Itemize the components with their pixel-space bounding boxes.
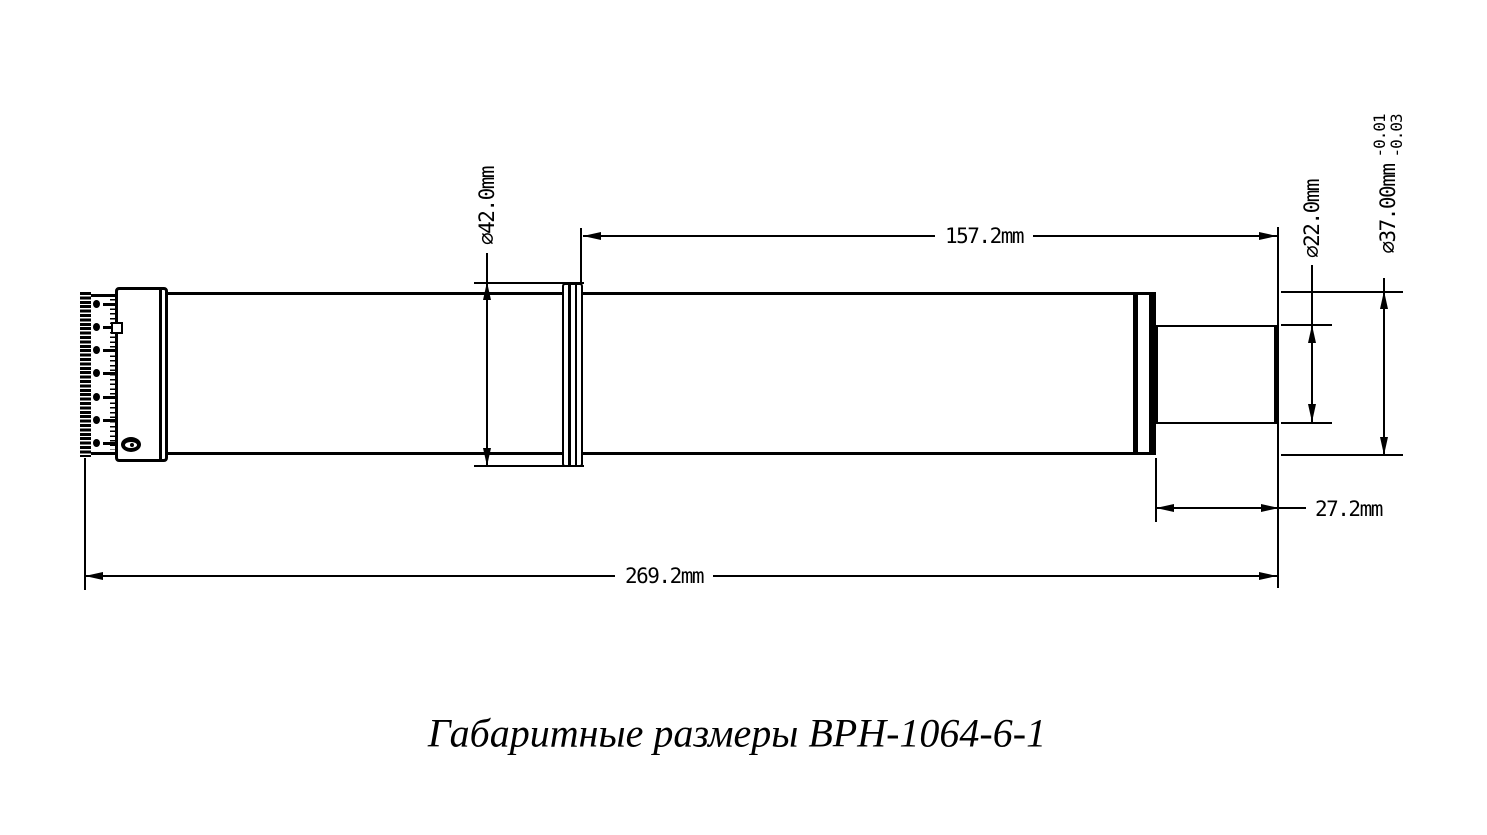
dim-tolerance-lower: -0.03 [1388,114,1405,157]
dim-arrow-down [483,448,491,466]
extension-line-shoulder [1155,458,1157,522]
extension-line-tip-bottom [1281,422,1332,424]
dim-arrow-up [1380,291,1388,309]
adjustment-knurl-ring [80,292,91,457]
rear-cap-inner-line [159,290,162,459]
graduation-scale [91,294,116,455]
dim-arrow-right [1261,504,1279,512]
front-end-face [1149,294,1156,453]
dim-line-tip-length [1156,507,1306,509]
dim-label-body-diameter: ⌀37.00mm -0.01 -0.03 [1371,114,1405,253]
scale-numeral-mark [93,346,100,354]
front-groove-ring [1133,294,1138,453]
dim-label-tip-diameter: ⌀22.0mm [1300,180,1324,258]
dim-arrow-down [1380,437,1388,455]
scale-major-tick [103,372,115,375]
dim-arrow-up [483,282,491,300]
dim-arrow-left [583,232,601,240]
dim-label-collar-diameter: ⌀42.0mm [475,167,499,245]
extension-line-front-face [1277,227,1279,588]
scale-major-tick [103,396,115,399]
dim-arrow-down [1308,404,1316,422]
extension-line-tip-top [1281,324,1332,326]
dim-line-front-length [583,235,935,237]
dim-arrow-left [85,572,103,580]
scale-numeral-mark [93,416,100,424]
drawing-title: Габаритные размеры BPH-1064-6-1 [428,710,1046,757]
logo-badge [121,437,141,452]
extension-line-rear-end [84,458,86,590]
dim-arrow-right [1259,572,1277,580]
mount-collar [562,283,583,467]
dimension-drawing: ⌀42.0mm 157.2mm ⌀22.0mm ⌀37.00mm -0.01 -… [0,0,1487,835]
scale-numeral-mark [93,323,100,331]
dim-line-overall-length [85,575,622,577]
output-tip-section [1156,325,1279,424]
dim-line-overall-length [706,575,1277,577]
scale-numeral-mark [93,393,100,401]
index-mark-tab [111,322,123,334]
dim-line-front-length [1032,235,1277,237]
dim-line-tip-diameter [1311,265,1313,422]
scale-major-tick [103,349,115,352]
extension-line-collar-right [580,228,582,285]
mount-collar-inner-line [575,285,578,465]
dim-label-overall-length: 269.2mm [615,564,713,588]
main-body-tube [168,292,1156,455]
dim-label-tip-length: 27.2mm [1315,497,1382,521]
dim-label-body-diameter-value: ⌀37.00mm [1376,165,1400,254]
scale-numeral-mark [93,300,100,308]
dim-arrow-left [1156,504,1174,512]
dim-tolerance-stack: -0.01 -0.03 [1371,114,1405,157]
scale-numeral-mark [93,369,100,377]
scale-major-tick [103,419,115,422]
scale-major-tick [103,442,115,445]
logo-badge-dot [130,443,134,447]
mount-collar-inner-line [568,285,571,465]
dim-tolerance-upper: -0.01 [1371,114,1388,157]
dim-label-front-length: 157.2mm [935,224,1033,248]
scale-numeral-mark [93,439,100,447]
dim-arrow-right [1259,232,1277,240]
scale-major-tick [103,303,115,306]
dim-arrow-up [1308,325,1316,343]
